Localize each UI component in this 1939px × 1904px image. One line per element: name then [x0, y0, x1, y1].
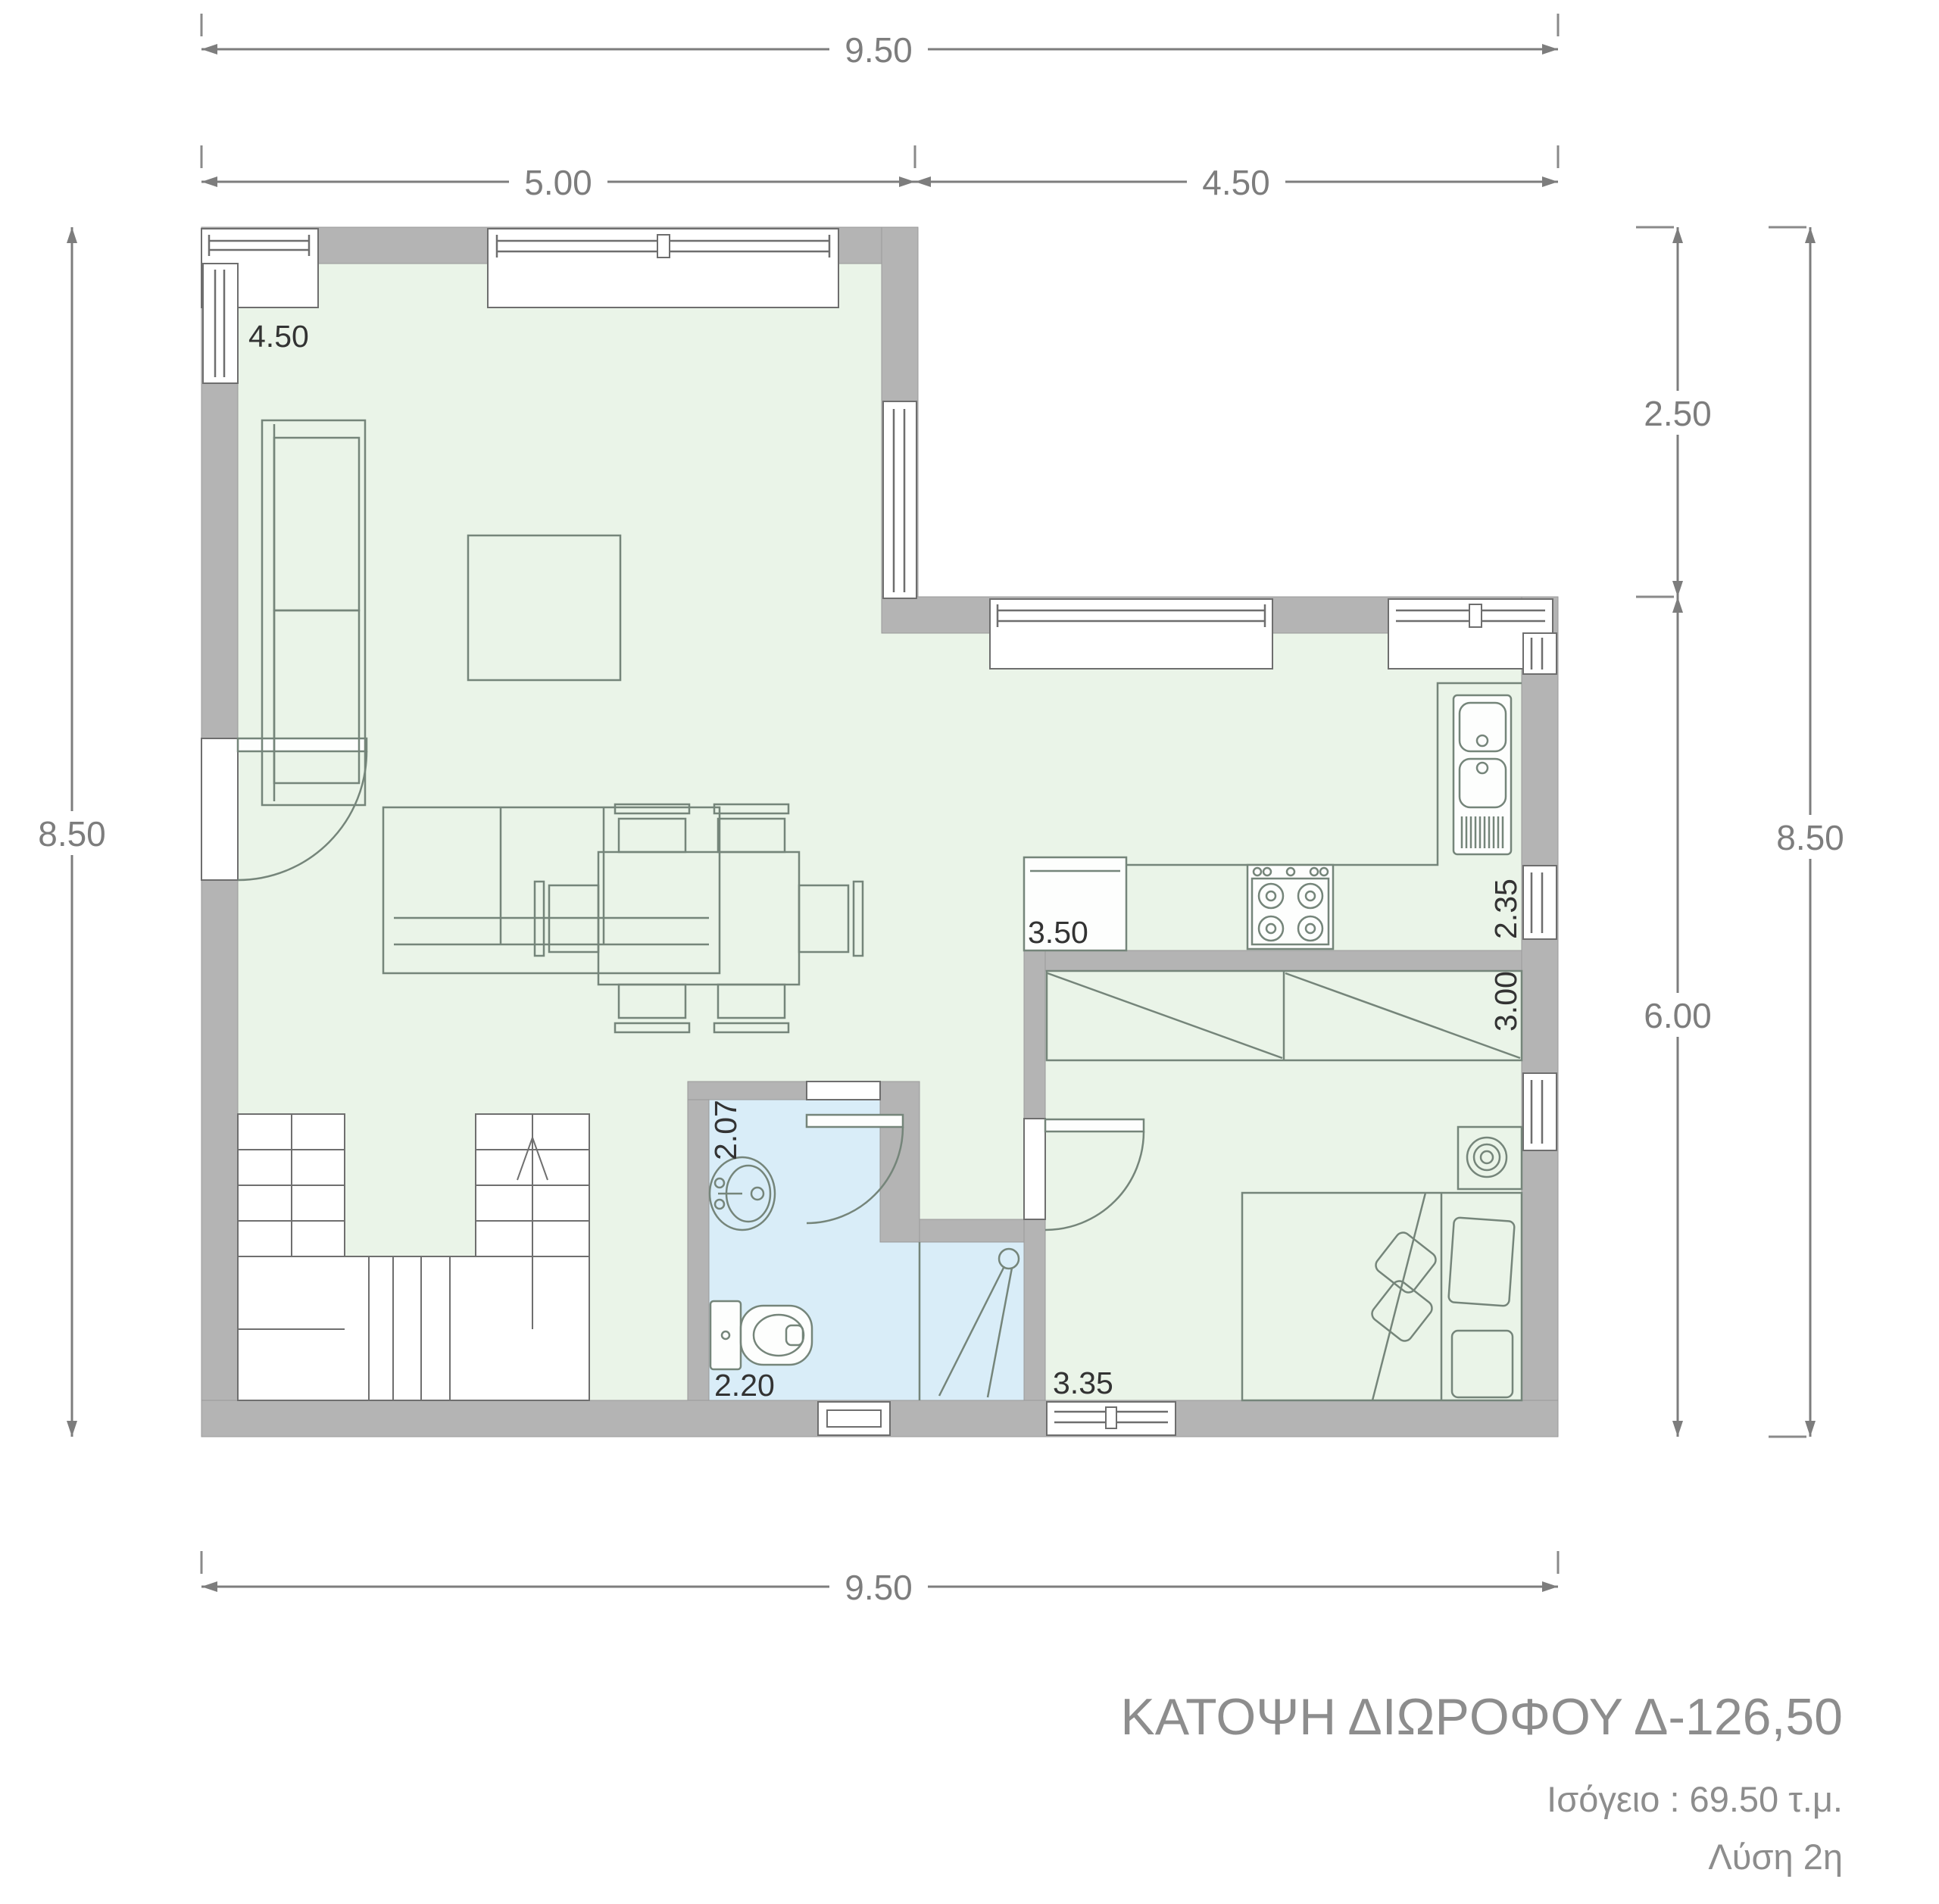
- label-bathroom-depth: 2.07: [708, 1100, 743, 1160]
- svg-text:5.00: 5.00: [524, 163, 592, 202]
- label-kitchen-depth: 2.35: [1488, 879, 1523, 939]
- window-notch-vertical-wall: [883, 401, 916, 598]
- window-bathroom-bottom: [818, 1402, 890, 1435]
- window-kitchen-right: [1523, 866, 1557, 939]
- floor-plan-drawing: 4.50 3.50 2.35 3.00 2.07 2.20 3.35 9.50 …: [0, 0, 1939, 1904]
- wall-shower-bedroom: [1024, 1219, 1045, 1400]
- stove: [1247, 865, 1333, 949]
- wall-kitchen-bedroom: [1024, 950, 1522, 971]
- svg-text:4.50: 4.50: [1202, 163, 1270, 202]
- label-bedroom-depth: 3.00: [1488, 971, 1523, 1032]
- dim-top-total: 9.50: [201, 14, 1558, 70]
- title-block: ΚΑΤΟΨΗ ΔΙΩΡΟΦΟΥ Δ-126,50 Ισόγειο : 69.50…: [1120, 1688, 1843, 1877]
- svg-text:9.50: 9.50: [845, 30, 913, 70]
- wall-bathroom-top: [688, 1082, 807, 1100]
- svg-text:2.50: 2.50: [1644, 394, 1712, 433]
- window-left-corner: [203, 264, 238, 383]
- label-kitchen-width: 3.50: [1028, 915, 1088, 950]
- dim-bottom-total: 9.50: [201, 1551, 1558, 1607]
- window-kitchen-top-1: [990, 599, 1272, 669]
- label-bathroom-width: 2.20: [714, 1368, 775, 1403]
- dim-top-split: 5.00 4.50: [201, 145, 1558, 202]
- svg-text:6.00: 6.00: [1644, 996, 1712, 1035]
- wall-hall-bedroom-upper: [1024, 950, 1045, 1119]
- dim-right-split: 2.50 6.00: [1627, 227, 1728, 1437]
- window-right-corner: [1523, 633, 1557, 674]
- wall-bathroom-left: [688, 1082, 709, 1400]
- label-bedroom-width: 3.35: [1053, 1366, 1113, 1400]
- drawing-title: ΚΑΤΟΨΗ ΔΙΩΡΟΦΟΥ Δ-126,50: [1120, 1688, 1843, 1746]
- toilet: [710, 1301, 812, 1369]
- svg-text:8.50: 8.50: [38, 814, 106, 854]
- svg-text:9.50: 9.50: [845, 1568, 913, 1607]
- floor-plan-sheet: 4.50 3.50 2.35 3.00 2.07 2.20 3.35 9.50 …: [0, 0, 1939, 1904]
- window-bedroom-bottom: [1047, 1402, 1176, 1435]
- exterior-notch: [882, 223, 1560, 597]
- window-bedroom-right: [1523, 1073, 1557, 1150]
- dim-right-total: 8.50: [1759, 227, 1861, 1437]
- kitchen-sink: [1453, 695, 1511, 854]
- window-livingroom-top: [488, 229, 838, 307]
- wall-bathroom-hall-block: [880, 1082, 920, 1242]
- drawing-solution: Λύση 2η: [1708, 1837, 1843, 1877]
- wall-exterior-right: [1522, 597, 1558, 1437]
- wall-hall-bottom: [920, 1219, 1024, 1242]
- svg-text:8.50: 8.50: [1776, 818, 1844, 857]
- dim-left-total: 8.50: [21, 227, 123, 1437]
- label-living-width: 4.50: [248, 319, 309, 354]
- drawing-area: Ισόγειο : 69.50 τ.μ.: [1547, 1779, 1843, 1819]
